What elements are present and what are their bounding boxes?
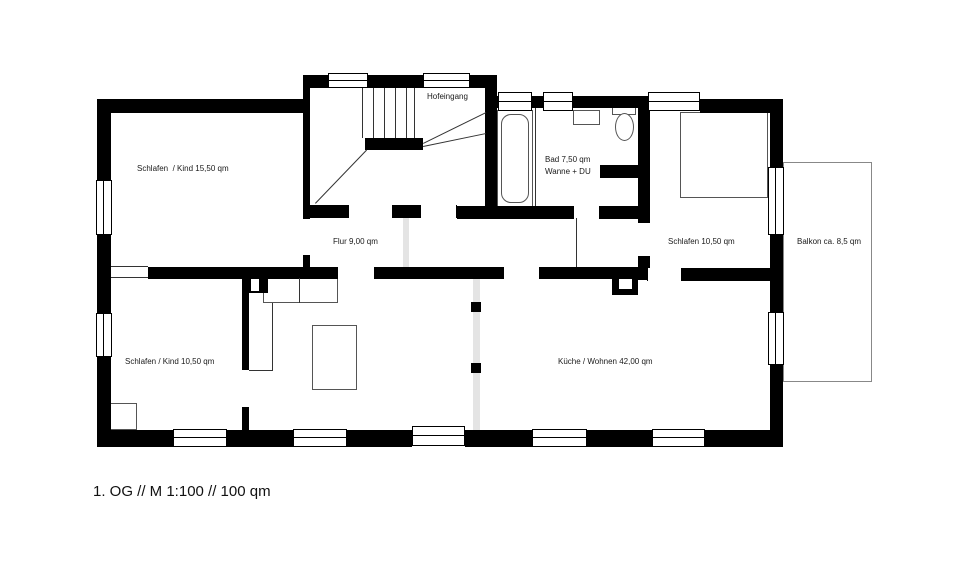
window bbox=[96, 313, 112, 357]
wall-opening-hole bbox=[251, 279, 259, 291]
window-frame-line bbox=[533, 437, 586, 438]
wall-segment bbox=[457, 206, 573, 219]
door-opening bbox=[503, 267, 540, 279]
door-opening bbox=[420, 205, 457, 218]
bed bbox=[680, 112, 768, 198]
window bbox=[412, 426, 465, 446]
bathtub-inner bbox=[501, 114, 529, 203]
washbasin bbox=[573, 110, 600, 125]
wall-segment bbox=[303, 88, 310, 218]
wall-segment bbox=[465, 430, 532, 447]
wall-segment bbox=[532, 96, 543, 108]
window-frame-line bbox=[103, 181, 104, 234]
wall-opening-hole bbox=[619, 279, 632, 289]
room-label-balkon: Balkon ca. 8,5 qm bbox=[797, 237, 861, 247]
wall-segment bbox=[303, 205, 348, 218]
window-frame-line bbox=[329, 80, 367, 81]
wall-segment bbox=[705, 430, 783, 447]
plan-caption: 1. OG // M 1:100 // 100 qm bbox=[93, 483, 271, 500]
door-opening bbox=[337, 267, 375, 279]
window bbox=[328, 73, 368, 88]
window bbox=[423, 73, 470, 88]
window bbox=[498, 92, 532, 111]
window-frame-line bbox=[174, 437, 226, 438]
window-frame-line bbox=[775, 168, 776, 234]
table bbox=[312, 325, 357, 390]
thin-line bbox=[299, 278, 300, 303]
window bbox=[293, 429, 347, 447]
wall-segment bbox=[600, 165, 640, 178]
thin-line bbox=[111, 266, 148, 267]
door-opening bbox=[647, 268, 682, 281]
door-opening bbox=[303, 218, 310, 256]
wall-segment bbox=[303, 256, 310, 267]
wall-segment bbox=[638, 108, 650, 222]
room-label-kueche: Küche / Wohnen 42,00 qm bbox=[558, 357, 653, 367]
window bbox=[532, 429, 587, 447]
floor-plan: 1. OG // M 1:100 // 100 qm Schlafen / Ki… bbox=[0, 0, 960, 572]
room-label-schlafen-2: Schlafen 10,50 qm bbox=[668, 237, 735, 247]
balcony bbox=[783, 162, 872, 382]
window bbox=[652, 429, 705, 447]
window-frame-line bbox=[294, 437, 346, 438]
wall-segment bbox=[682, 268, 783, 281]
wall-segment bbox=[242, 277, 249, 370]
wall-segment bbox=[97, 430, 173, 447]
door-opening bbox=[348, 205, 393, 218]
thin-line bbox=[535, 108, 536, 206]
wall-segment bbox=[367, 75, 423, 88]
wall-segment bbox=[303, 75, 330, 88]
window bbox=[543, 92, 573, 111]
wc-bowl bbox=[615, 113, 634, 141]
window-frame-line bbox=[499, 101, 531, 102]
wardrobe bbox=[263, 278, 338, 303]
removed-wall-strip bbox=[473, 278, 480, 430]
thin-line bbox=[406, 88, 407, 138]
wall-segment bbox=[347, 430, 412, 447]
window bbox=[173, 429, 227, 447]
thin-line bbox=[272, 303, 273, 370]
window-frame-line bbox=[544, 101, 572, 102]
window-frame-line bbox=[653, 437, 704, 438]
corner-cabinet bbox=[110, 403, 137, 430]
window bbox=[648, 92, 700, 111]
window-frame-line bbox=[413, 435, 464, 436]
column-marker bbox=[471, 363, 481, 373]
wall-segment bbox=[375, 267, 503, 279]
thin-line bbox=[111, 277, 148, 278]
column-marker bbox=[471, 302, 481, 312]
door-opening bbox=[638, 222, 650, 257]
wall-segment bbox=[600, 206, 638, 219]
window bbox=[96, 180, 112, 235]
thin-line bbox=[384, 88, 385, 138]
window-frame-line bbox=[103, 314, 104, 356]
wall-segment bbox=[97, 99, 310, 113]
window-frame-line bbox=[424, 80, 469, 81]
wall-segment bbox=[470, 75, 497, 88]
wall-segment bbox=[490, 96, 498, 108]
wall-segment bbox=[393, 205, 420, 218]
thin-line bbox=[315, 150, 367, 204]
door-opening bbox=[573, 206, 600, 219]
removed-wall-strip bbox=[403, 215, 409, 267]
thin-line bbox=[362, 88, 363, 138]
window bbox=[768, 312, 784, 365]
room-label-schlafen-kind-1: Schlafen / Kind 15,50 qm bbox=[137, 164, 229, 174]
window-frame-line bbox=[649, 101, 699, 102]
room-label-bad-line1: Bad 7,50 qm bbox=[545, 155, 590, 165]
wall-segment bbox=[97, 235, 111, 313]
window bbox=[768, 167, 784, 235]
wall-segment bbox=[770, 99, 783, 167]
wall-segment bbox=[242, 407, 249, 430]
thin-line bbox=[395, 88, 396, 138]
thin-line bbox=[414, 88, 415, 138]
thin-line bbox=[373, 88, 374, 138]
thin-line bbox=[576, 218, 577, 267]
room-label-bad-line2: Wanne + DU bbox=[545, 167, 591, 177]
wall-segment bbox=[365, 138, 423, 150]
room-label-schlafen-kind-2: Schlafen / Kind 10,50 qm bbox=[125, 357, 214, 367]
wall-segment bbox=[227, 430, 293, 447]
window-frame-line bbox=[775, 313, 776, 364]
room-label-hofeingang: Hofeingang bbox=[427, 92, 468, 102]
thin-line bbox=[249, 370, 273, 371]
wall-segment bbox=[587, 430, 652, 447]
room-label-flur: Flur 9,00 qm bbox=[333, 237, 378, 247]
thin-line bbox=[423, 133, 486, 147]
